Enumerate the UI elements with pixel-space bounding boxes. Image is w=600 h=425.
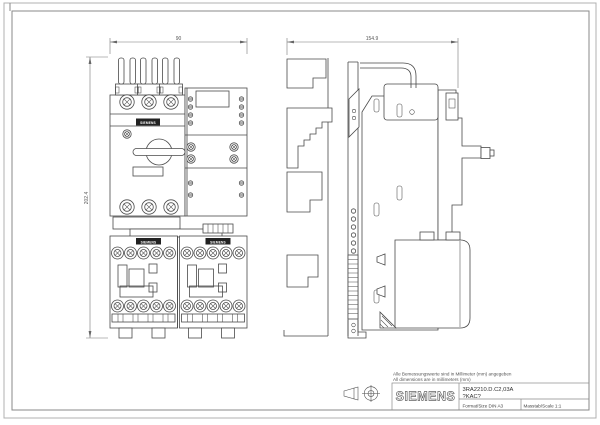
dimension-front-width: 90 [110,36,247,54]
breaker-side-profile [438,90,481,240]
contactor-right-label: SIEMENS [210,240,226,244]
title-block: SIEMENS 3RA2210.D.C2,03A ?KAC? Format/Si… [392,383,589,410]
contactor-module-left: SIEMENS [110,236,178,338]
front-view: SIEMENS SIEMENS [110,58,247,338]
busbar-terminals [116,58,183,95]
rib-comb [348,255,358,319]
note-line-en: All dimensions are in millimeters (mm) [393,377,471,382]
product-number-line1: 3RA2210.D.C2,03A [463,387,514,393]
technical-drawing: 90 154.9 202.4 [0,0,600,425]
notes: Alle Bemessungswerte sind in Millimeter … [393,372,512,383]
dimension-front-height: 202.4 [84,57,108,338]
dim-front-width-value: 90 [176,36,182,42]
contactor-module-right: SIEMENS [180,236,248,338]
drawing-page: 90 154.9 202.4 [0,0,600,425]
breaker-label: SIEMENS [140,121,156,125]
scale-field: Masstab/Scale 1:1 [524,404,562,409]
projection-symbol-icon [344,385,380,402]
siemens-logo: SIEMENS [396,390,456,404]
product-number-line2: ?KAC? [463,394,482,400]
side-view [284,58,494,338]
dim-front-height-value: 202.4 [84,192,90,205]
format-field: Format/Size DIN A3 [463,404,504,409]
note-line-de: Alle Bemessungswerte sind in Millimeter … [393,372,512,377]
handle-shaft [481,148,490,159]
rail-wedge [349,89,359,137]
contactor-left-label: SIEMENS [141,240,157,244]
dim-side-width-value: 154.9 [366,36,379,42]
contactor-side-profile [395,240,470,328]
